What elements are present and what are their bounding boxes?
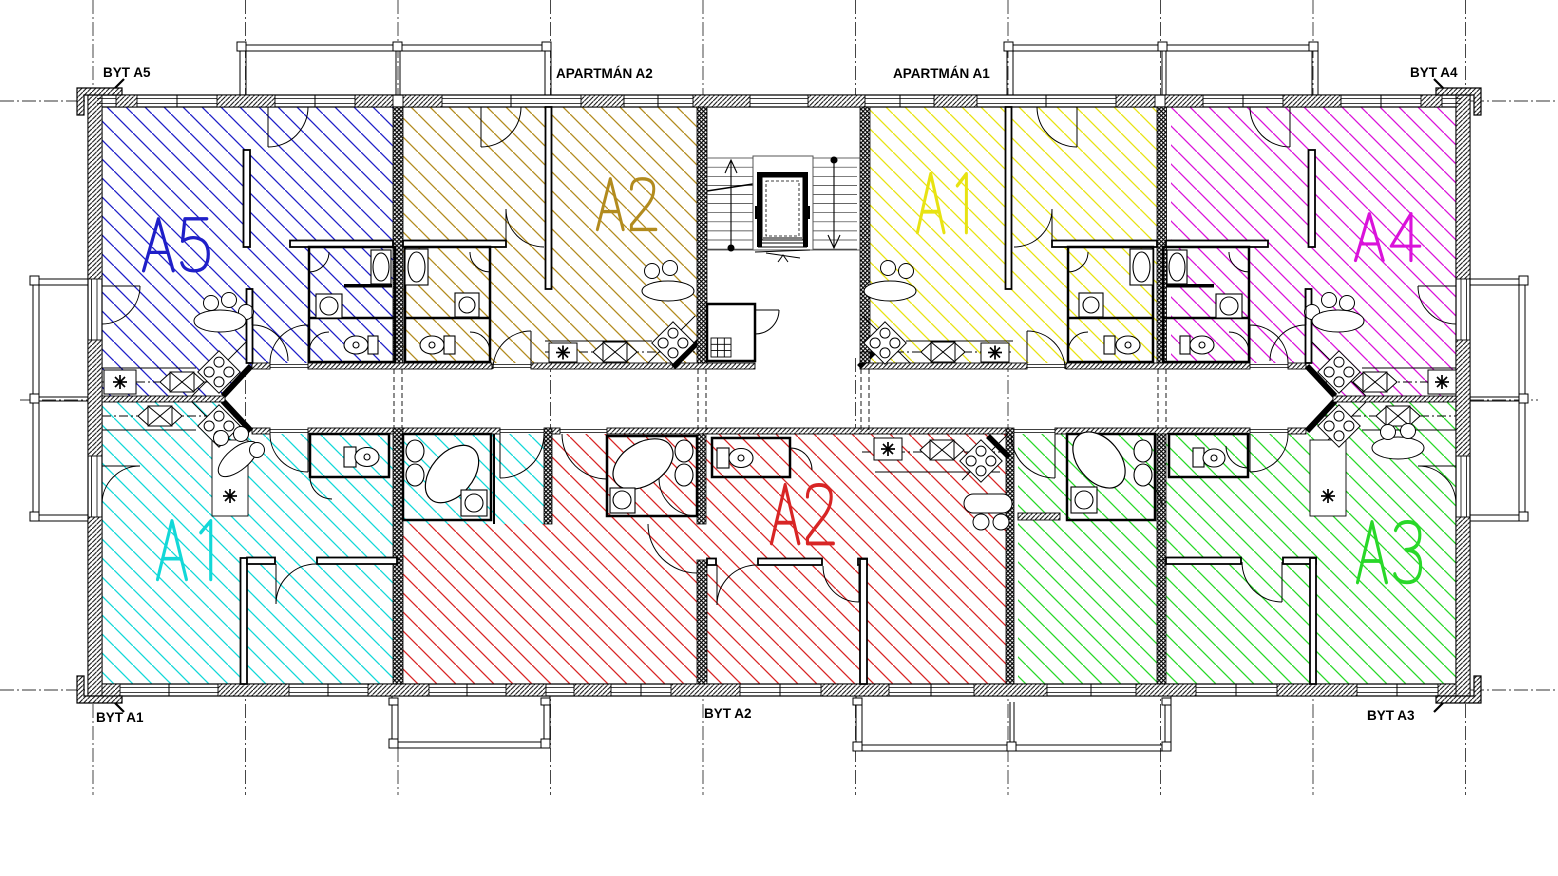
svg-text:APARTMÁN A1: APARTMÁN A1 — [893, 66, 990, 81]
svg-text:BYT A2: BYT A2 — [704, 706, 752, 721]
svg-text:BYT A5: BYT A5 — [103, 65, 151, 80]
svg-text:BYT A1: BYT A1 — [96, 710, 144, 725]
svg-text:BYT A4: BYT A4 — [1410, 65, 1458, 80]
svg-text:APARTMÁN A2: APARTMÁN A2 — [556, 66, 653, 81]
svg-text:BYT A3: BYT A3 — [1367, 708, 1415, 723]
